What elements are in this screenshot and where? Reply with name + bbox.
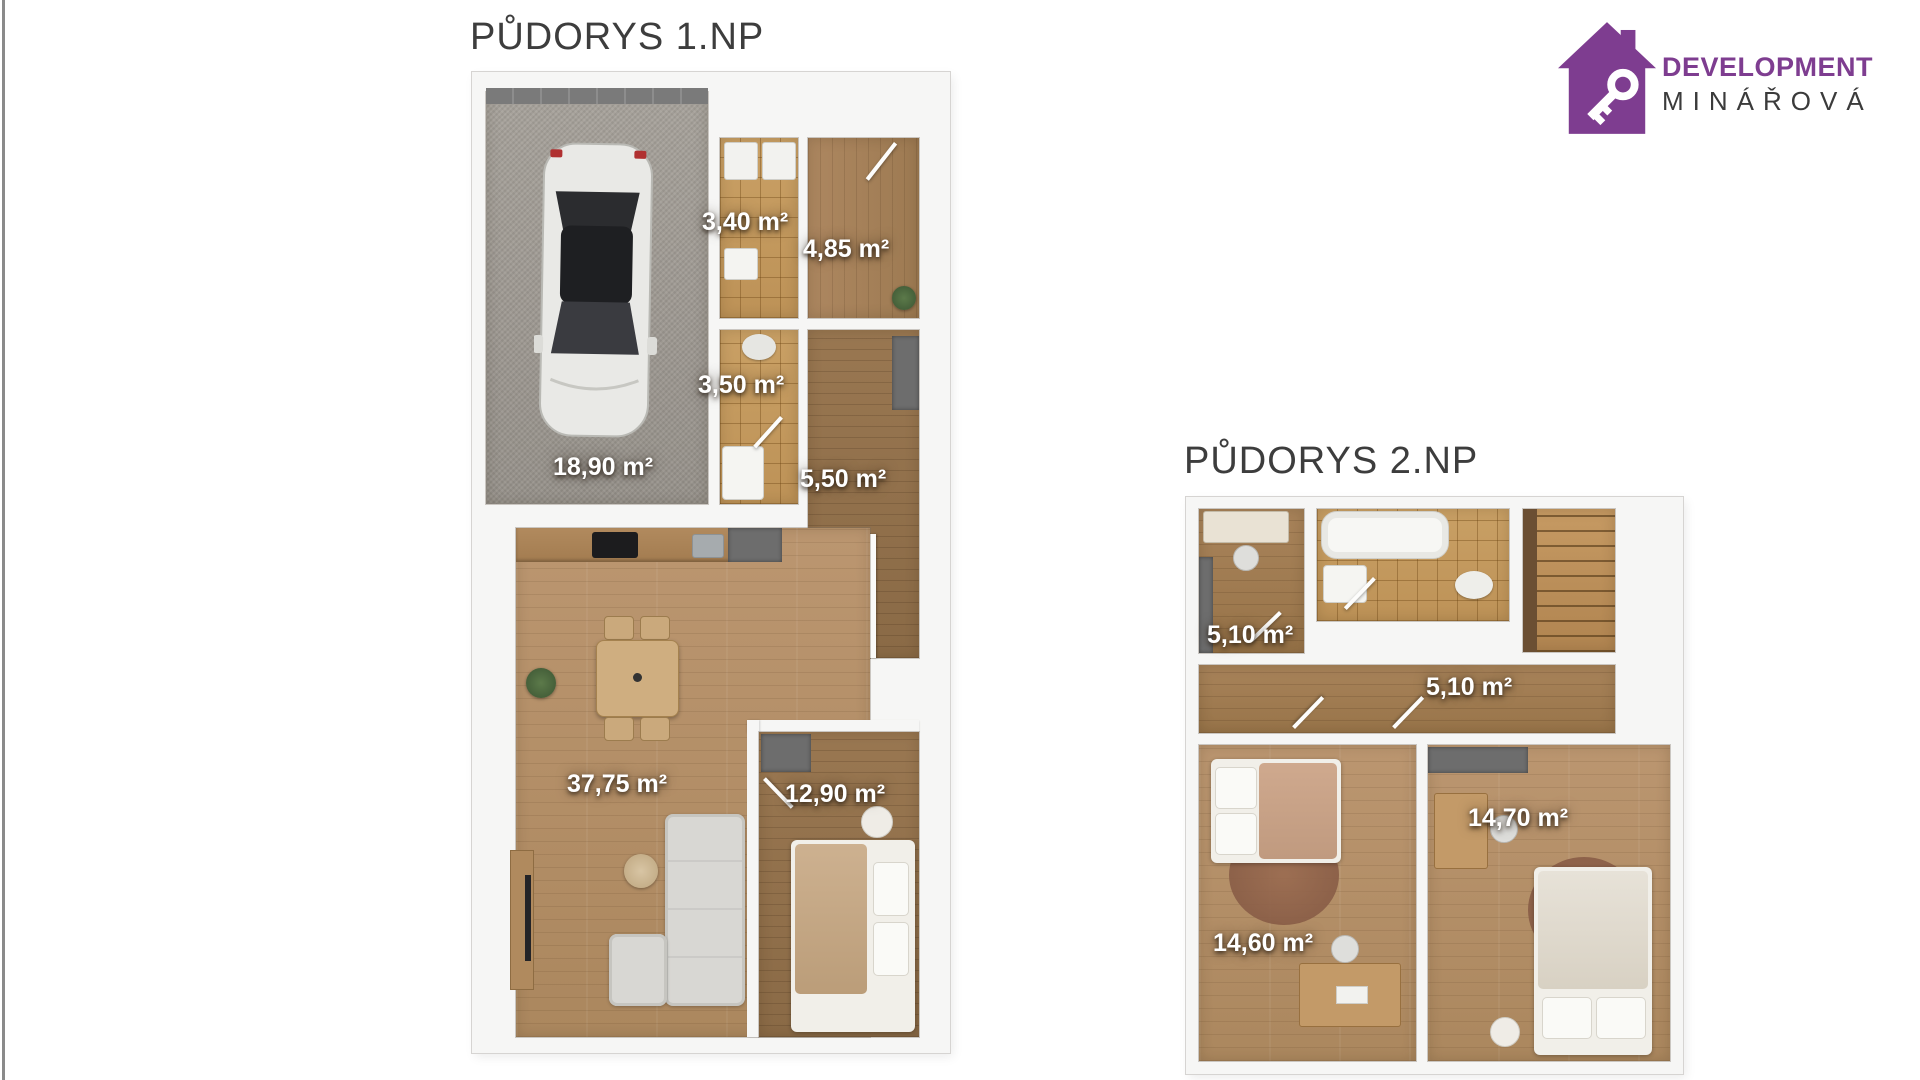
area-label-garage: 18,90 m² xyxy=(553,453,653,482)
floor1-title: PŮDORYS 1.NP xyxy=(470,16,764,59)
company-logo: DEVELOPMENT MINÁŘOVÁ xyxy=(1558,22,1898,134)
area-label-bedroom-left: 14,60 m² xyxy=(1213,929,1313,958)
room-bathroom xyxy=(1317,509,1509,621)
bedroom-right-door-leaf xyxy=(1392,696,1424,729)
desk-chair xyxy=(1331,935,1359,963)
desk xyxy=(1299,963,1401,1027)
pillow xyxy=(873,862,909,916)
double-bed xyxy=(1211,759,1341,863)
room-bedroom-left xyxy=(1199,745,1416,1061)
pillow xyxy=(873,922,909,976)
room-hall2 xyxy=(1199,665,1615,733)
room-bedroom-right xyxy=(1428,745,1670,1061)
bedroom-wall-top xyxy=(747,720,919,732)
logo-company-name: DEVELOPMENT xyxy=(1662,52,1873,83)
house-with-key-icon xyxy=(1558,22,1656,134)
area-label-hall2: 5,10 m² xyxy=(1426,673,1512,702)
chair xyxy=(604,717,634,741)
wardrobe xyxy=(1428,747,1528,773)
toilet xyxy=(742,334,776,360)
sofa-chaise xyxy=(609,934,667,1006)
pillow xyxy=(1542,997,1592,1039)
area-label-hall: 5,50 m² xyxy=(800,465,886,494)
bedroom-left-door-leaf xyxy=(1292,696,1324,729)
wc-door-leaf xyxy=(753,416,783,448)
room-entry xyxy=(808,138,919,318)
area-label-tech: 3,40 m² xyxy=(702,208,788,237)
bedroom-wall-left xyxy=(747,720,759,1037)
kitchen-tall-cabinet xyxy=(728,528,782,562)
chair xyxy=(640,717,670,741)
double-bed xyxy=(791,840,915,1032)
bed-blanket xyxy=(1259,763,1337,859)
coffee-table xyxy=(624,854,658,888)
chair xyxy=(640,616,670,640)
bathtub xyxy=(1321,511,1449,559)
room-wc xyxy=(720,330,798,504)
chair xyxy=(604,616,634,640)
area-label-living: 37,75 m² xyxy=(567,770,667,799)
area-label-study: 5,10 m² xyxy=(1207,621,1293,650)
front-door-leaf xyxy=(866,142,897,181)
laptop xyxy=(1336,986,1368,1004)
garage-door xyxy=(486,88,708,104)
car-top-view xyxy=(534,140,658,440)
table-decor xyxy=(633,673,642,682)
double-bed xyxy=(1534,867,1652,1055)
bedroom-wardrobe xyxy=(761,734,811,772)
desk xyxy=(1203,511,1289,543)
desk-chair xyxy=(1233,545,1259,571)
side-table xyxy=(861,806,893,838)
bed-blanket xyxy=(795,844,867,994)
sink xyxy=(722,446,764,500)
washer xyxy=(724,142,758,180)
dining-table xyxy=(596,640,679,717)
dryer xyxy=(762,142,796,180)
floorplan-2np: 5,10 m² 5,10 m² 14,70 m² 14,60 m² xyxy=(1186,497,1683,1074)
kitchen-sink xyxy=(692,534,724,558)
stair-railing xyxy=(870,534,876,658)
cabinet xyxy=(724,248,758,280)
pillow xyxy=(1215,767,1257,809)
page-left-edge-line xyxy=(2,0,5,1080)
stair-stringer xyxy=(1523,509,1537,652)
room-bedroom xyxy=(759,732,919,1037)
area-label-entry: 4,85 m² xyxy=(803,235,889,264)
cooktop xyxy=(592,532,638,558)
hall-wardrobe xyxy=(892,336,919,410)
tv xyxy=(525,875,531,961)
bed-blanket xyxy=(1538,871,1648,989)
logo-owner-name: MINÁŘOVÁ xyxy=(1662,86,1873,117)
floorplan-1np: 18,90 m² 3,40 m² 4,85 m² 3,50 m² 5,50 m²… xyxy=(472,72,950,1053)
area-label-bedroom-right: 14,70 m² xyxy=(1468,804,1568,833)
pillow xyxy=(1215,813,1257,855)
sofa xyxy=(665,814,745,1006)
floor2-title: PŮDORYS 2.NP xyxy=(1184,440,1478,483)
room-garage xyxy=(486,92,708,504)
side-table xyxy=(1490,1017,1520,1047)
toilet xyxy=(1455,571,1493,599)
area-label-bedroom: 12,90 m² xyxy=(785,780,885,809)
bathroom-sink xyxy=(1323,565,1367,603)
plant xyxy=(526,668,556,698)
pillow xyxy=(1596,997,1646,1039)
plant xyxy=(892,286,916,310)
staircase xyxy=(1523,509,1615,652)
tv-sideboard xyxy=(510,850,534,990)
area-label-wc: 3,50 m² xyxy=(698,371,784,400)
